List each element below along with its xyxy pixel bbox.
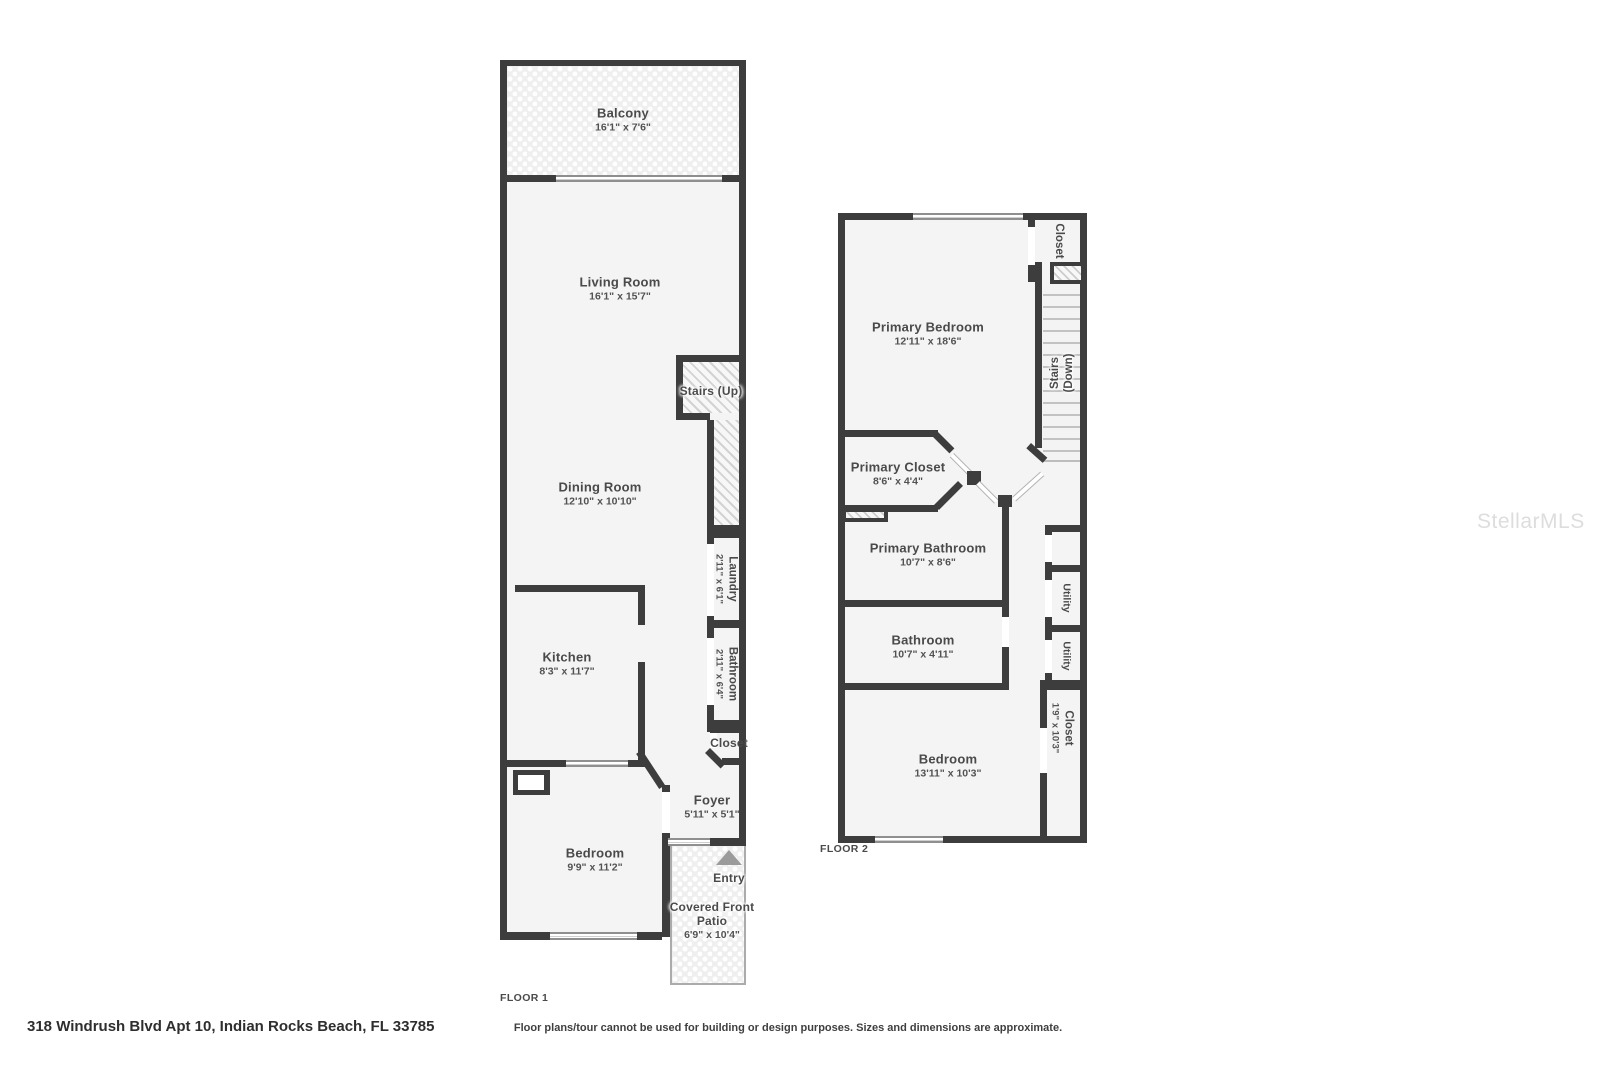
room-label-closet-f1: Closet xyxy=(710,736,748,750)
hatch-area xyxy=(1050,262,1085,284)
wall xyxy=(838,600,1009,607)
pass-through-opening xyxy=(566,760,628,767)
entry-arrow-icon xyxy=(716,850,742,865)
wall xyxy=(507,760,566,767)
room-label-stairs-up: Stairs (Up) xyxy=(680,384,743,398)
wall xyxy=(707,420,714,538)
wall xyxy=(1040,680,1087,690)
room-label-foyer: Foyer 5'11" x 5'1" xyxy=(684,793,739,822)
wall xyxy=(1045,625,1087,632)
floor-plan-page: Balcony 16'1" x 7'6" Living Room 16'1" x… xyxy=(0,0,1600,1066)
watermark: StellarMLS xyxy=(1477,510,1585,534)
room-label-living-room: Living Room 16'1" x 15'7" xyxy=(580,275,661,304)
room-label-dining-room: Dining Room 12'10" x 10'10" xyxy=(558,480,641,509)
room-label-utility-a: Utility xyxy=(1060,583,1073,612)
room-label-entry: Entry xyxy=(713,871,745,885)
window xyxy=(875,836,943,843)
wall xyxy=(1045,565,1087,572)
room-label-bedroom-f2: Bedroom 13'11" x 10'3" xyxy=(915,752,982,781)
room-label-bedroom-f1: Bedroom 9'9" x 11'2" xyxy=(566,846,624,875)
wall xyxy=(707,525,739,538)
door-opening xyxy=(662,792,670,833)
room-label-primary-bathroom: Primary Bathroom 10'7" x 8'6" xyxy=(870,541,987,570)
door-opening xyxy=(1002,617,1009,647)
entry-door xyxy=(668,838,710,846)
door-opening xyxy=(1045,535,1052,562)
wall xyxy=(1002,507,1009,690)
wall xyxy=(710,720,746,733)
room-label-bathroom-f2: Bathroom 10'7" x 4'11" xyxy=(892,633,955,662)
wall xyxy=(676,413,710,420)
room-label-covered-front-patio: Covered Front Patio 6'9" x 10'4" xyxy=(666,900,758,942)
window xyxy=(550,932,637,940)
wall xyxy=(500,60,746,66)
wall xyxy=(998,495,1012,507)
room-label-balcony: Balcony 16'1" x 7'6" xyxy=(595,106,651,135)
room-label-laundry: Laundry 2'11" x 6'1" xyxy=(713,554,738,604)
room-label-bathroom-f1: Bathroom 2'11" x 6'4" xyxy=(713,647,738,701)
utility-box-interior xyxy=(518,775,544,790)
wall xyxy=(676,355,746,362)
wall xyxy=(515,585,645,592)
wall xyxy=(500,175,556,182)
wall xyxy=(845,430,938,437)
room-label-stairs-down: Stairs (Down) xyxy=(1049,354,1077,393)
property-address: 318 Windrush Blvd Apt 10, Indian Rocks B… xyxy=(27,1018,435,1035)
wall xyxy=(722,758,746,765)
wall xyxy=(710,838,746,846)
window xyxy=(913,213,1023,220)
room-label-primary-closet: Primary Closet 8'6" x 4'4" xyxy=(851,460,946,489)
room-label-primary-bedroom: Primary Bedroom 12'11" x 18'6" xyxy=(872,320,984,349)
door-opening xyxy=(1040,728,1047,773)
floor1-tag: FLOOR 1 xyxy=(500,992,548,1004)
wall xyxy=(838,683,1003,690)
disclaimer-text: Floor plans/tour cannot be used for buil… xyxy=(488,1022,1088,1034)
hatch-area xyxy=(842,508,888,522)
wall xyxy=(838,213,845,843)
wall xyxy=(722,175,746,182)
room-label-closet-top: Closet xyxy=(1051,223,1065,258)
door-opening xyxy=(1028,227,1035,265)
floor2-tag: FLOOR 2 xyxy=(820,843,868,855)
room-label-utility-b: Utility xyxy=(1060,641,1073,670)
wall xyxy=(500,60,507,940)
wall xyxy=(707,620,746,628)
wall xyxy=(1035,262,1042,448)
room-label-kitchen: Kitchen 8'3" x 11'7" xyxy=(539,650,594,679)
wall xyxy=(638,585,645,625)
stairs-hatch xyxy=(714,420,739,525)
sliding-door xyxy=(556,175,722,182)
room-label-closet-right: Closet 1'9" x 10'3" xyxy=(1049,703,1074,754)
wall xyxy=(638,662,645,760)
wall xyxy=(513,790,550,795)
door-opening xyxy=(1045,640,1052,673)
door-opening xyxy=(1045,580,1052,617)
